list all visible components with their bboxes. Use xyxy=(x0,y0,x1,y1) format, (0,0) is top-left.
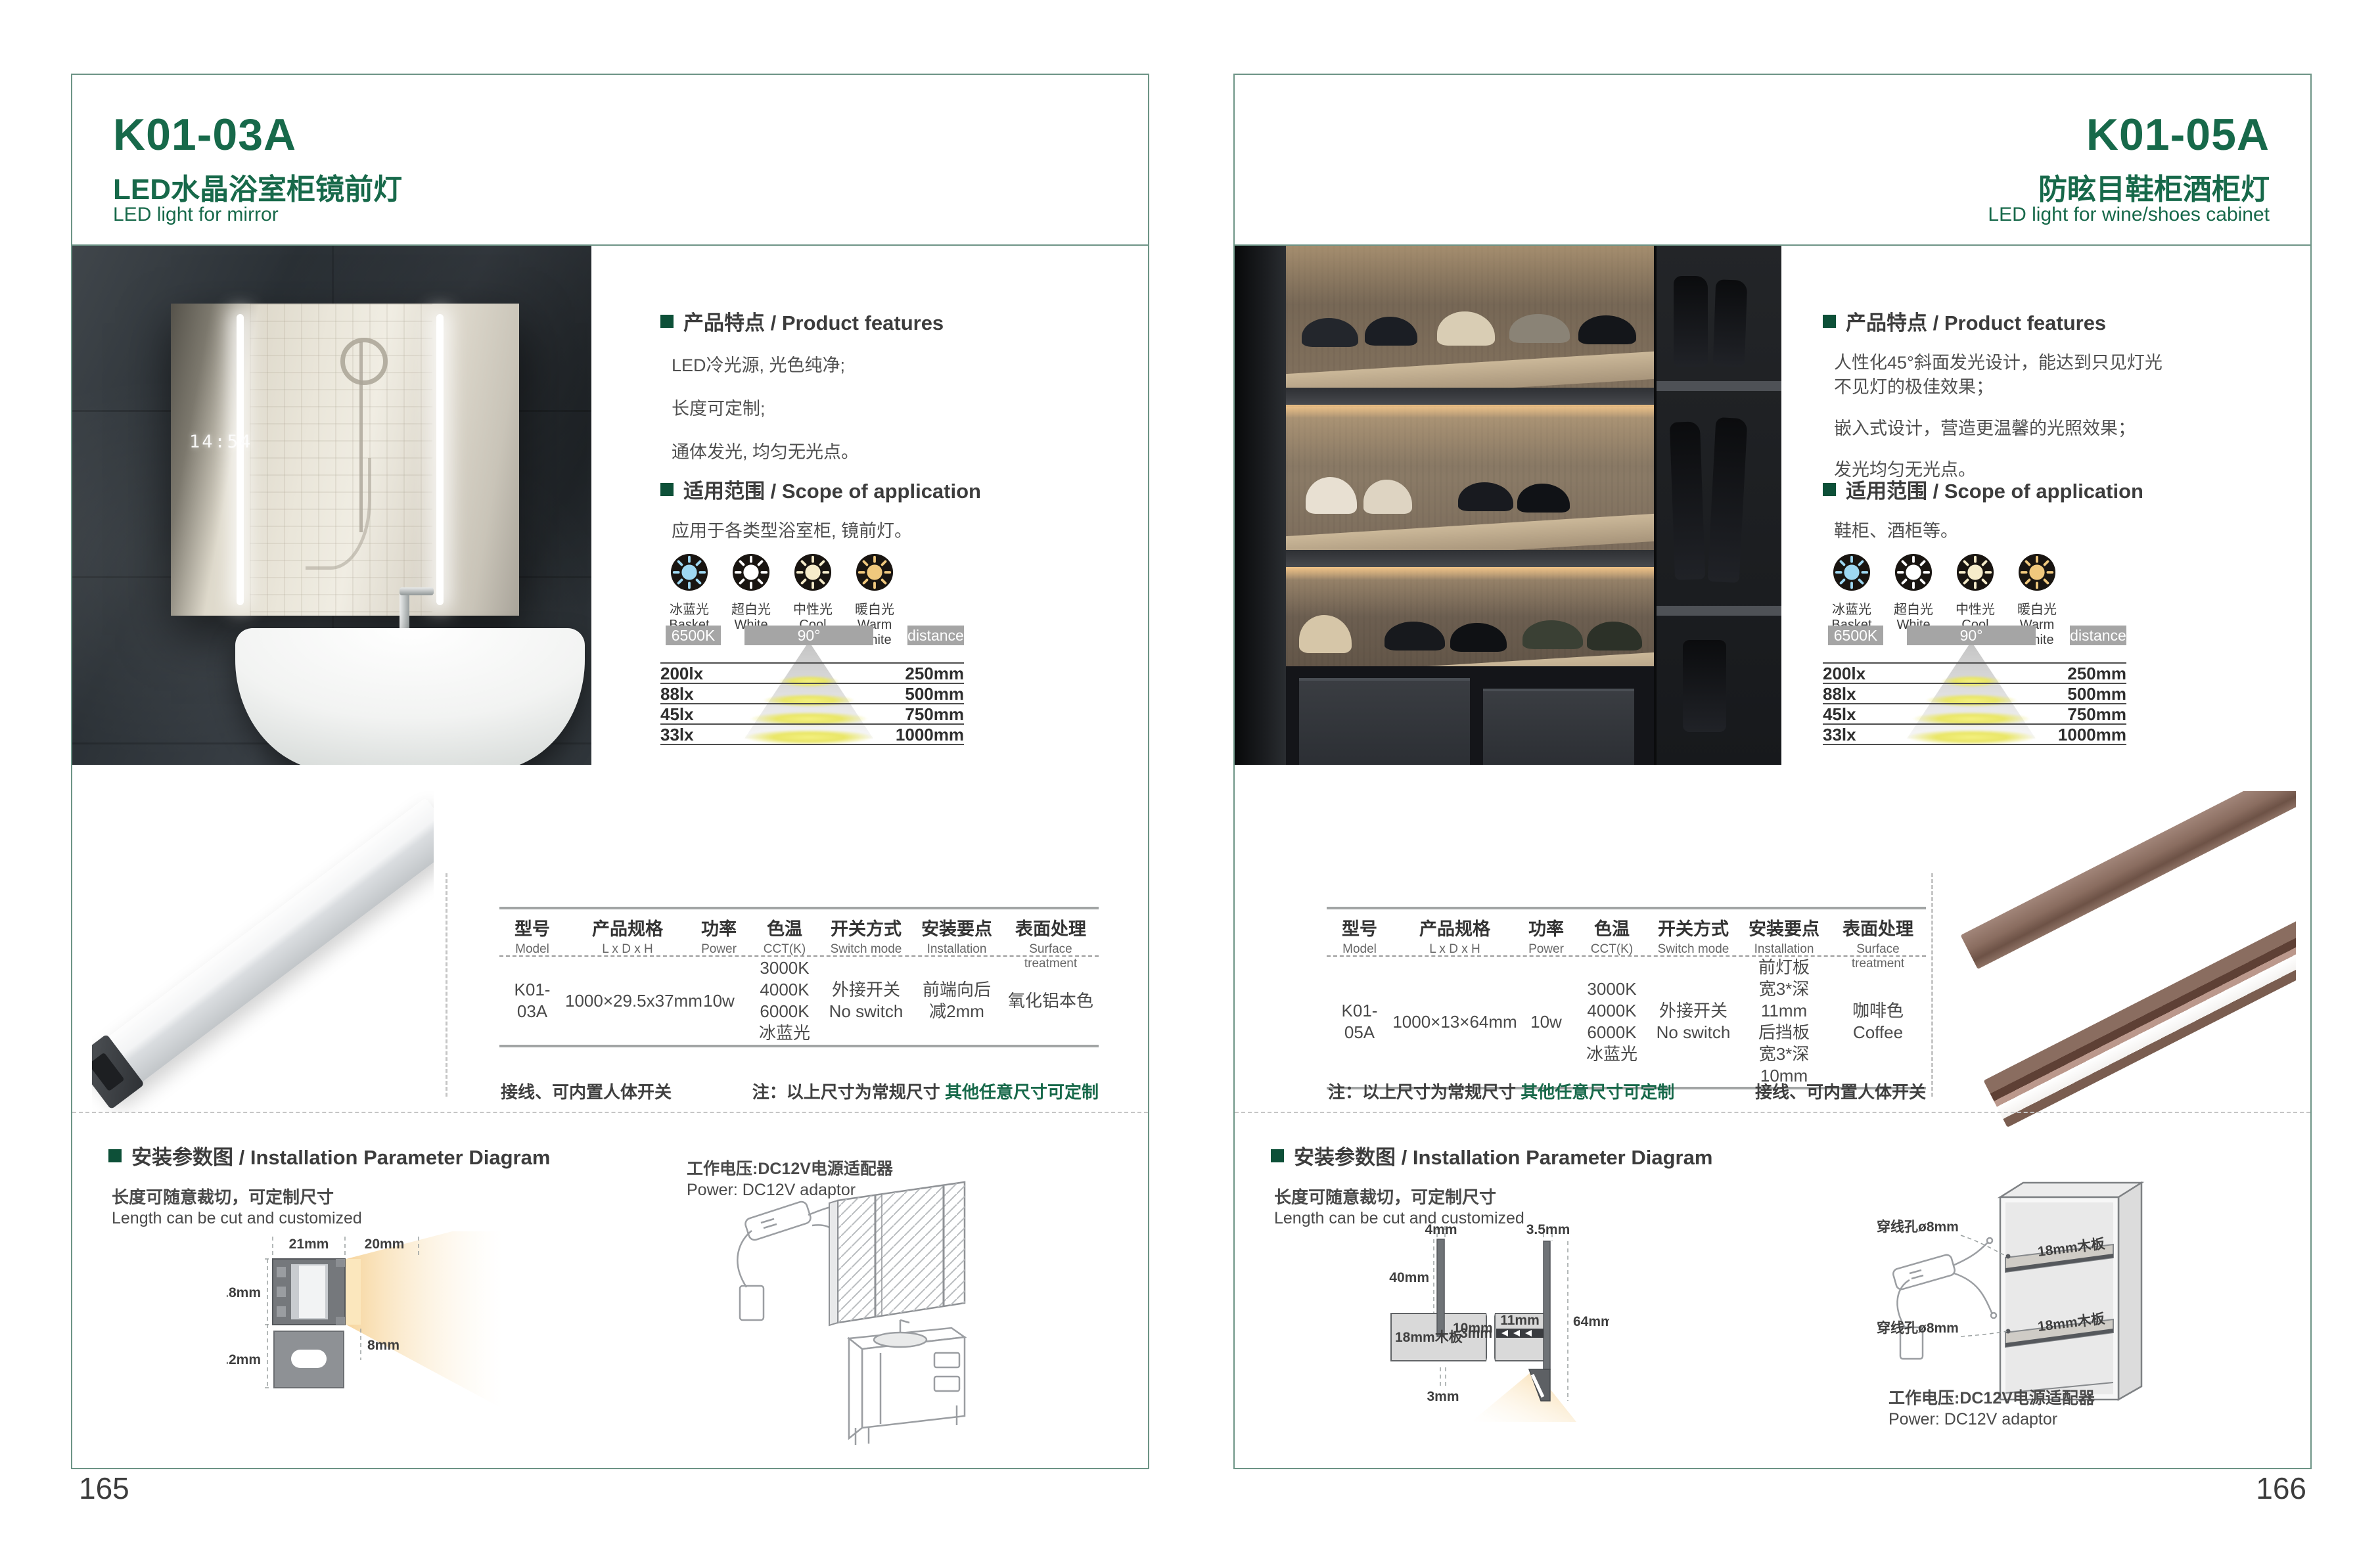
aluminium-profile-image xyxy=(92,785,434,1113)
beam-angle-badge: 90° xyxy=(744,626,873,645)
col-header-cn: 型号 xyxy=(499,915,565,940)
scope-title-text: 适用范围 / Scope of application xyxy=(683,474,981,504)
reflected-shower-head xyxy=(340,338,388,385)
wiring-note: 接线、可内置人体开关 xyxy=(1327,1079,1926,1103)
sun-icon xyxy=(670,553,708,591)
power-note-cn: 工作电压:DC12V电源适配器 xyxy=(1888,1385,2095,1409)
power-note-en: Power: DC12V adaptor xyxy=(1888,1410,2057,1429)
features-list: LED冷光源, 光色纯净; 长度可定制; 通体发光, 均匀无光点。 xyxy=(672,351,859,481)
front-light-panel xyxy=(1437,1239,1444,1336)
mount-bracket xyxy=(274,1331,344,1388)
feature-item: 嵌入式设计，营造更温馨的光照效果； xyxy=(1834,417,2163,441)
col-header-en: Surface treatment xyxy=(1003,942,1099,971)
cell-surface: 氧化铝本色 xyxy=(1003,990,1099,1012)
size-note: 注：以上尺寸为常规尺寸 其他任意尺寸可定制 xyxy=(499,1079,1099,1103)
col-header-cn: 产品规格 xyxy=(565,915,690,940)
feature-item: 人性化45°斜面发光设计，能达到只见灯光 xyxy=(1834,351,2163,375)
install-title-text: 安装参数图 / Installation Parameter Diagram xyxy=(131,1141,550,1170)
distance-value: 500mm xyxy=(2067,684,2126,703)
profile-end-cap xyxy=(92,1034,145,1110)
sun-icon xyxy=(794,553,832,591)
light-label-cn: 冰蓝光 xyxy=(660,599,718,618)
cut-note-cn: 长度可随意裁切，可定制尺寸 xyxy=(112,1184,334,1208)
feature-item: 长度可定制; xyxy=(672,394,859,420)
storage-boxes xyxy=(1286,666,1654,765)
spec-table: 型号Model 产品规格L x D x H 功率Power 色温CCT(K) 开… xyxy=(1327,907,1926,1089)
horizontal-dashed-divider xyxy=(1235,1112,2310,1113)
lux-row: 88lx 500mm xyxy=(660,683,964,703)
lux-row: 88lx 500mm xyxy=(1823,683,2126,703)
cut-note-cn: 长度可随意裁切，可定制尺寸 xyxy=(1274,1184,1496,1208)
scope-text: 鞋柜、酒柜等。 xyxy=(1834,516,1958,542)
basin xyxy=(235,628,585,765)
sun-icon xyxy=(1956,553,1994,591)
shelf-light-wash xyxy=(1286,407,1654,486)
vertical-dashed-divider xyxy=(446,873,447,1097)
feature-item: 通体发光, 均匀无光点。 xyxy=(672,438,859,463)
col-header-en: Model xyxy=(499,942,565,957)
light-beam xyxy=(1471,1369,1576,1422)
led-strip-right xyxy=(436,314,444,605)
dim-14-8mm: 14.8mm xyxy=(227,1285,261,1300)
diffuser-glow xyxy=(345,1259,361,1325)
dim-8mm: 8mm xyxy=(367,1338,400,1353)
cable-hole-label: 穿线孔ø8mm xyxy=(1877,1320,1959,1336)
col-header-en: Switch mode xyxy=(821,942,911,957)
bathroom-sink xyxy=(235,628,585,765)
distance-value: 250mm xyxy=(2067,664,2126,683)
lux-value: 88lx xyxy=(1823,684,1856,703)
col-header-en: Surface treatment xyxy=(1830,942,1926,971)
sun-icon xyxy=(1833,553,1871,591)
spec-table: 型号Model 产品规格L x D x H 功率Power 色温CCT(K) 开… xyxy=(499,907,1099,1047)
cell-surface: 咖啡色 Coffee xyxy=(1830,1000,1926,1043)
scope-section-title: 适用范围 / Scope of application xyxy=(1823,474,2143,504)
col-header-cn: 安装要点 xyxy=(1738,915,1830,940)
distance-value: 1000mm xyxy=(896,725,964,744)
mirror-installation-illustration xyxy=(683,1162,979,1451)
cell-cct: 3000K 4000K 6000K 冰蓝光 xyxy=(1575,978,1649,1065)
section-bullet-icon xyxy=(660,483,674,496)
dim-20mm: 20mm xyxy=(365,1237,405,1252)
lux-value: 33lx xyxy=(1823,725,1856,744)
boot xyxy=(1713,279,1748,367)
cct-badge: 6500K xyxy=(1828,626,1883,645)
led-strip-left xyxy=(237,314,244,605)
light-label-cn: 暖白光 xyxy=(2008,599,2066,618)
spec-table-header: 型号Model 产品规格L x D x H 功率Power 色温CCT(K) 开… xyxy=(499,909,1099,957)
boot xyxy=(1674,276,1708,367)
lux-value: 88lx xyxy=(660,684,694,703)
lux-distance-rows: 200lx 250mm 88lx 500mm 45lx 750mm 33lx 1… xyxy=(660,662,964,745)
cabinet-installation-illustration: 穿线孔ø8mm 穿线孔ø8mm 18mm木板 18mm木板 xyxy=(1875,1158,2158,1421)
scope-section-title: 适用范围 / Scope of application xyxy=(660,474,981,504)
light-label-cn: 中性光 xyxy=(784,599,842,618)
page-header: K01-03A LED水晶浴室柜镜前灯 LED light for mirror xyxy=(72,75,1148,246)
section-bullet-icon xyxy=(1271,1149,1284,1162)
dim-21mm: 21mm xyxy=(289,1237,329,1252)
lux-row: 200lx 250mm xyxy=(660,662,964,683)
dim-3mm-strip: 3mm xyxy=(1460,1326,1492,1341)
col-header-en: CCT(K) xyxy=(1575,942,1649,957)
cell-switch: 外接开关 No switch xyxy=(821,979,911,1022)
beam-angle-badge: 90° xyxy=(1907,626,2036,645)
cell-install: 前灯板 宽3*深11mm 后挡板 宽3*深10mm xyxy=(1738,957,1830,1087)
col-header-en: CCT(K) xyxy=(748,942,821,957)
scope-title-text: 适用范围 / Scope of application xyxy=(1846,474,2143,504)
product-title-cn: LED水晶浴室柜镜前灯 xyxy=(113,166,402,208)
adaptor-and-plug xyxy=(1892,1238,1996,1359)
spec-table-row: K01-05A 1000×13×64mm 10w 3000K 4000K 600… xyxy=(1327,957,1926,1087)
col-header-en: L x D x H xyxy=(565,942,690,957)
product-title-en: LED light for wine/shoes cabinet xyxy=(1988,204,2270,226)
horizontal-dashed-divider xyxy=(72,1112,1148,1113)
col-header-cn: 表面处理 xyxy=(1003,915,1099,940)
col-header-cn: 色温 xyxy=(748,915,821,940)
product-code: K01-05A xyxy=(2086,109,2270,160)
light-label-cn: 超白光 xyxy=(1885,599,1942,618)
cell-install: 前端向后 减2mm xyxy=(911,979,1003,1022)
col-header-en: Installation xyxy=(911,942,1003,957)
dim-40mm: 40mm xyxy=(1389,1270,1429,1285)
features-section-title: 产品特点 / Product features xyxy=(1823,306,2106,336)
product-title-en: LED light for mirror xyxy=(113,204,279,226)
catalog-page-165: K01-03A LED水晶浴室柜镜前灯 LED light for mirror… xyxy=(71,74,1149,1469)
product-photo-shoe-cabinet xyxy=(1235,246,1781,765)
col-header-cn: 功率 xyxy=(690,915,748,940)
col-header-cn: 产品规格 xyxy=(1392,915,1517,940)
lighted-shelf xyxy=(1286,525,1654,567)
col-header-en: L x D x H xyxy=(1392,942,1517,957)
profile-body xyxy=(273,1259,345,1325)
boot xyxy=(1707,417,1747,583)
distance-badge: distance xyxy=(907,626,964,645)
feature-item: LED冷光源, 光色纯净; xyxy=(672,351,859,377)
col-header-en: Power xyxy=(1517,942,1575,957)
lux-value: 33lx xyxy=(660,725,694,744)
col-header-en: Installation xyxy=(1738,942,1830,957)
lux-value: 45lx xyxy=(660,704,694,723)
dim-64mm: 64mm xyxy=(1573,1314,1609,1329)
dim-3mm: 3mm xyxy=(1427,1389,1459,1404)
lighted-shelf xyxy=(1286,363,1654,405)
section-bullet-icon xyxy=(108,1149,122,1162)
faucet-spout xyxy=(400,587,434,595)
features-title-text: 产品特点 / Product features xyxy=(683,306,944,336)
lux-value: 45lx xyxy=(1823,704,1856,723)
board-label: 18mm木板 xyxy=(1395,1330,1463,1345)
catalog-spread: K01-03A LED水晶浴室柜镜前灯 LED light for mirror… xyxy=(0,0,2380,1552)
dim-3-5mm: 3.5mm xyxy=(1526,1222,1570,1237)
cabinet-right-column xyxy=(1657,246,1781,765)
lux-value: 200lx xyxy=(1823,664,1865,683)
distance-value: 1000mm xyxy=(2058,725,2126,744)
col-header-cn: 表面处理 xyxy=(1830,915,1926,940)
product-title-cn: 防眩目鞋柜酒柜灯 xyxy=(2038,166,2270,208)
lux-row: 33lx 1000mm xyxy=(660,723,964,744)
light-beam xyxy=(346,1231,503,1409)
col-header-en: Power xyxy=(690,942,748,957)
shelf-edge xyxy=(1657,381,1781,391)
distance-value: 250mm xyxy=(905,664,964,683)
product-photo-mirror: 14:54 xyxy=(72,246,591,765)
light-label-cn: 超白光 xyxy=(722,599,780,618)
boot xyxy=(1670,421,1705,580)
lux-value: 200lx xyxy=(660,664,703,683)
sun-icon xyxy=(2018,553,2056,591)
cell-switch: 外接开关 No switch xyxy=(1649,1000,1738,1043)
cut-note-en: Length can be cut and customized xyxy=(112,1209,362,1228)
cell-size: 1000×13×64mm xyxy=(1392,1011,1517,1033)
distance-value: 750mm xyxy=(905,704,964,723)
cell-power: 10w xyxy=(1517,1011,1575,1033)
col-header-en: Model xyxy=(1327,942,1392,957)
boot xyxy=(1683,640,1726,732)
cell-power: 10w xyxy=(690,990,748,1012)
beam-distance-chart: 6500K 90° distance 200lx 250mm 88lx 500m… xyxy=(1823,626,2126,739)
light-label-cn: 暖白光 xyxy=(846,599,904,618)
rear-panel xyxy=(1544,1241,1550,1369)
page-number-right: 166 xyxy=(2187,1471,2306,1506)
lux-distance-rows: 200lx 250mm 88lx 500mm 45lx 750mm 33lx 1… xyxy=(1823,662,2126,745)
vertical-dashed-divider xyxy=(1931,873,1933,1097)
sun-icon xyxy=(1894,553,1933,591)
vanity-cabinet xyxy=(849,1320,965,1445)
cell-cct: 3000K 4000K 6000K 冰蓝光 xyxy=(748,957,821,1044)
distance-badge: distance xyxy=(2070,626,2126,645)
coffee-cover-strip xyxy=(1961,791,2296,969)
section-bullet-icon xyxy=(1823,315,1836,328)
features-section-title: 产品特点 / Product features xyxy=(660,306,944,336)
dim-11mm: 11mm xyxy=(1500,1313,1540,1328)
col-header-cn: 开关方式 xyxy=(1649,915,1738,940)
mirror-clock: 14:54 xyxy=(189,432,252,452)
feature-item: 不见灯的极佳效果； xyxy=(1834,375,2163,399)
led-profile-bar xyxy=(92,798,434,1104)
cell-size: 1000×29.5x37mm xyxy=(565,990,690,1012)
lux-row: 45lx 750mm xyxy=(660,703,964,723)
product-code: K01-03A xyxy=(113,109,296,160)
install-section-title: 安装参数图 / Installation Parameter Diagram xyxy=(1271,1141,1712,1170)
lux-row: 33lx 1000mm xyxy=(1823,723,2126,744)
cabinet-door xyxy=(1235,246,1286,765)
section-bullet-icon xyxy=(1823,483,1836,496)
light-label-cn: 冰蓝光 xyxy=(1823,599,1881,618)
col-header-cn: 安装要点 xyxy=(911,915,1003,940)
features-title-text: 产品特点 / Product features xyxy=(1846,306,2106,336)
led-mirror: 14:54 xyxy=(171,304,519,616)
col-header-cn: 开关方式 xyxy=(821,915,911,940)
distance-value: 500mm xyxy=(905,684,964,703)
cct-badge: 6500K xyxy=(666,626,721,645)
install-section-title: 安装参数图 / Installation Parameter Diagram xyxy=(108,1141,550,1170)
install-title-text: 安装参数图 / Installation Parameter Diagram xyxy=(1294,1141,1712,1170)
page-header: K01-05A 防眩目鞋柜酒柜灯 LED light for wine/shoe… xyxy=(1235,75,2310,246)
mirror-panel xyxy=(829,1182,965,1325)
strip-slot xyxy=(1496,1329,1544,1338)
col-header-cn: 型号 xyxy=(1327,915,1392,940)
page-number-left: 165 xyxy=(79,1471,129,1506)
recessed-profile-section-diagram: 4mm 3.5mm 40mm 10mm 18mm木板 3mm 11mm 3mm … xyxy=(1379,1220,1609,1423)
cell-model: K01-03A xyxy=(499,979,565,1022)
cell-model: K01-05A xyxy=(1327,1000,1392,1043)
sun-icon xyxy=(856,553,894,591)
lux-row: 200lx 250mm xyxy=(1823,662,2126,683)
coffee-profile-image xyxy=(1948,791,2296,1133)
distance-value: 750mm xyxy=(2067,704,2126,723)
cable-hole-label: 穿线孔ø8mm xyxy=(1877,1219,1959,1235)
sun-icon xyxy=(732,553,770,591)
scope-text: 应用于各类型浴室柜, 镜前灯。 xyxy=(672,516,912,542)
light-label-cn: 中性光 xyxy=(1946,599,2004,618)
col-header-cn: 功率 xyxy=(1517,915,1575,940)
catalog-page-166: K01-05A 防眩目鞋柜酒柜灯 LED light for wine/shoe… xyxy=(1233,74,2312,1469)
lux-row: 45lx 750mm xyxy=(1823,703,2126,723)
dim-4mm: 4mm xyxy=(1425,1222,1457,1237)
shelf-edge xyxy=(1657,606,1781,616)
section-bullet-icon xyxy=(660,315,674,328)
spec-table-header: 型号Model 产品规格L x D x H 功率Power 色温CCT(K) 开… xyxy=(1327,909,1926,957)
cabinet-box xyxy=(2000,1183,2141,1400)
col-header-cn: 色温 xyxy=(1575,915,1649,940)
col-header-en: Switch mode xyxy=(1649,942,1738,957)
profile-cross-section-diagram: 21mm 20mm 14.8mm 12.2mm 8mm xyxy=(227,1231,503,1415)
custom-size-note: 其他任意尺寸可定制 xyxy=(945,1082,1099,1102)
dim-12-2mm: 12.2mm xyxy=(227,1352,261,1367)
beam-distance-chart: 6500K 90° distance 200lx 250mm 88lx 500m… xyxy=(660,626,964,739)
